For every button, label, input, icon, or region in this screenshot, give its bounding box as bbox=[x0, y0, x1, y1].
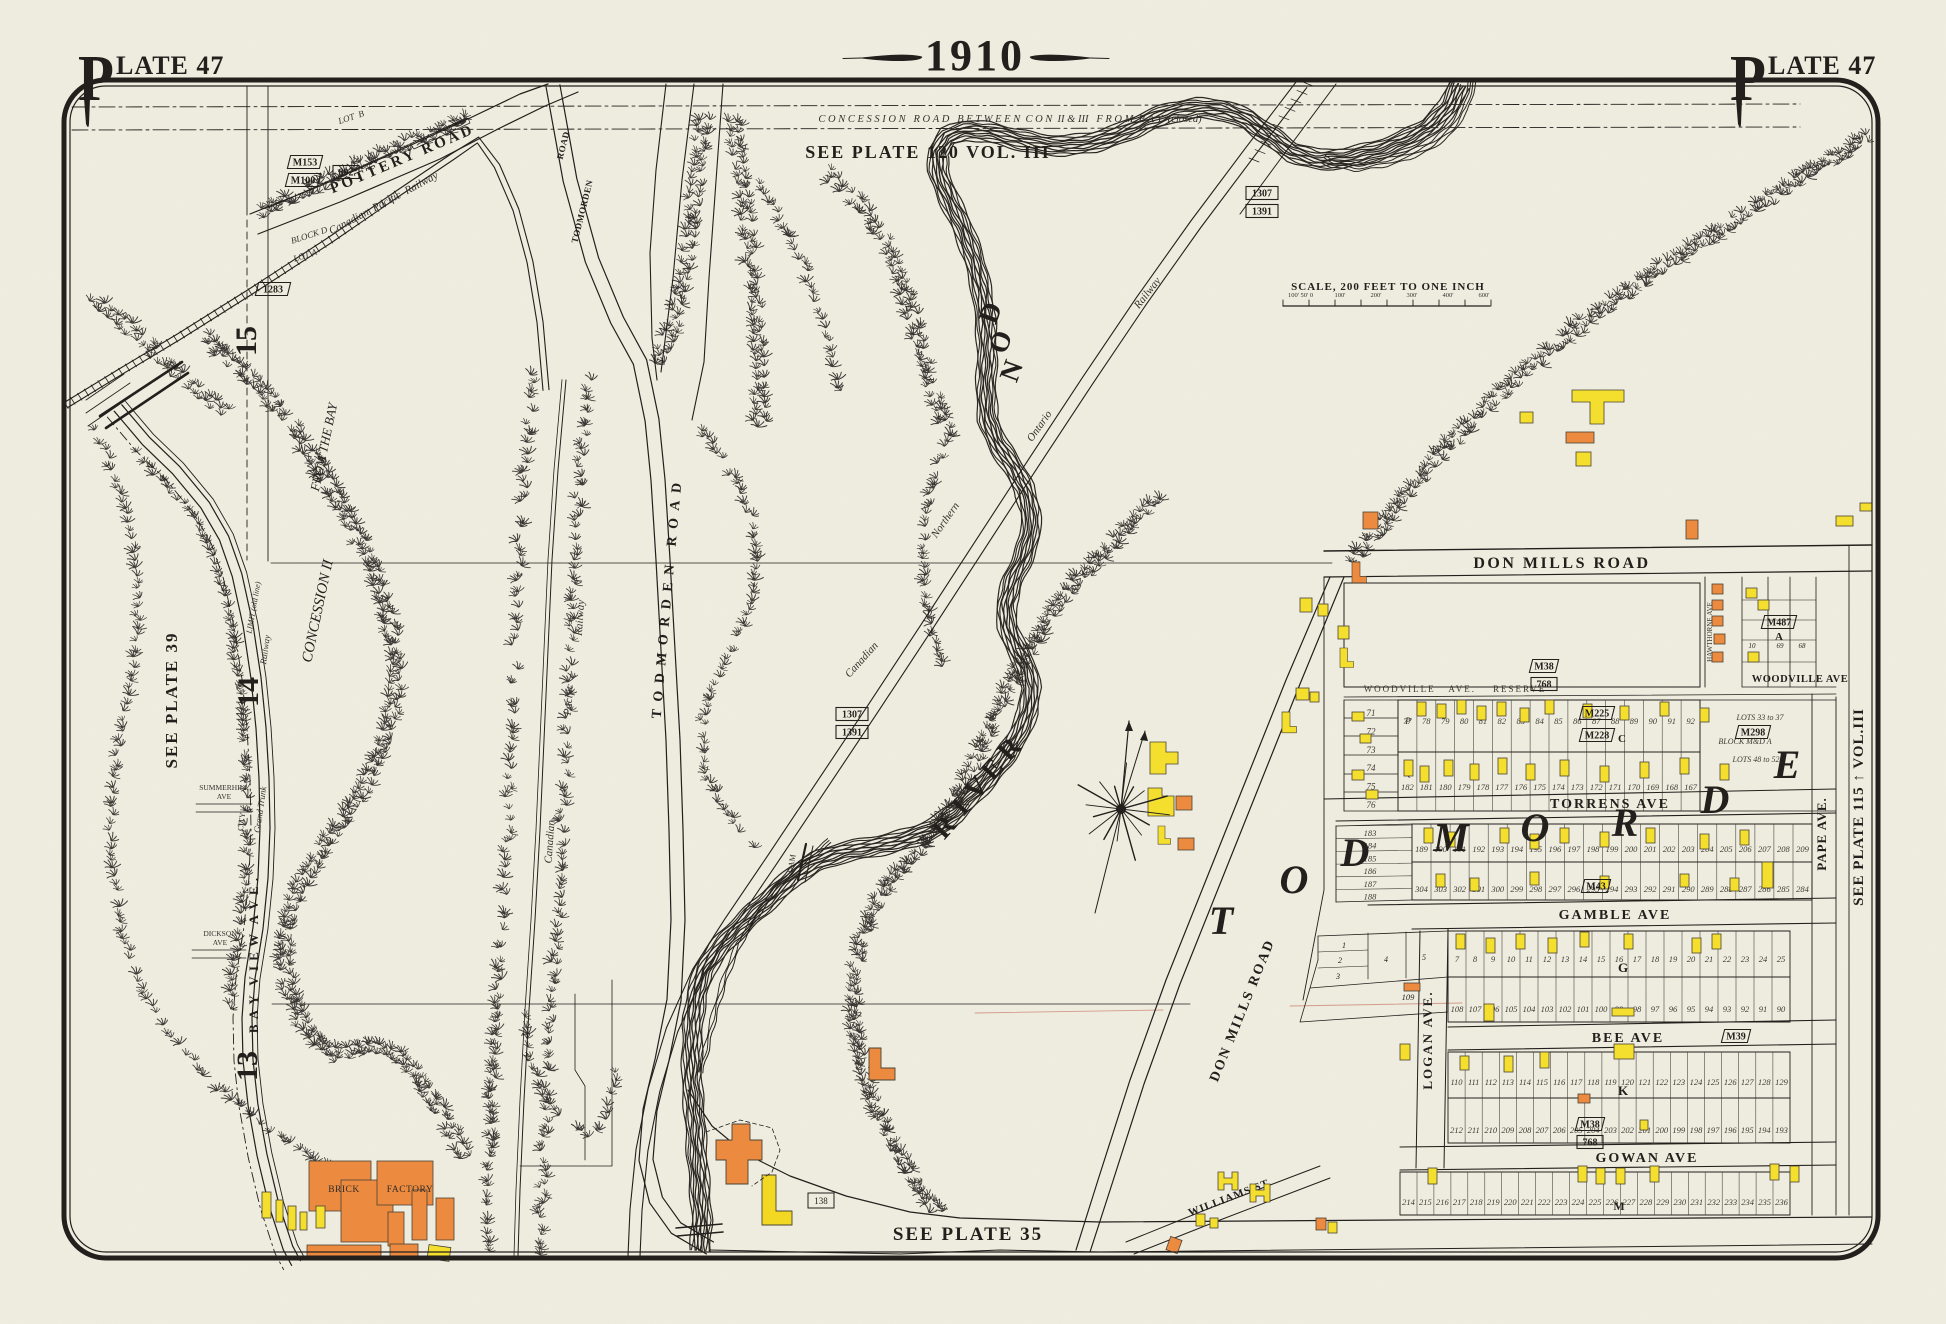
svg-text:AVE: AVE bbox=[213, 938, 228, 947]
svg-text:200: 200 bbox=[1625, 844, 1639, 854]
svg-text:5: 5 bbox=[1422, 953, 1426, 962]
svg-text:1391: 1391 bbox=[1252, 207, 1272, 218]
svg-text:21: 21 bbox=[1705, 954, 1714, 964]
svg-text:LATE 47: LATE 47 bbox=[116, 51, 224, 80]
svg-text:285: 285 bbox=[1777, 884, 1790, 894]
svg-text:123: 123 bbox=[1672, 1077, 1685, 1087]
svg-text:171: 171 bbox=[1609, 782, 1622, 792]
svg-text:M: M bbox=[1613, 1199, 1624, 1213]
svg-text:WOODVILLE AVE. RESERVE: WOODVILLE AVE. RESERVE bbox=[1364, 684, 1547, 694]
svg-text:92: 92 bbox=[1741, 1004, 1750, 1014]
svg-text:GOWAN AVE: GOWAN AVE bbox=[1596, 1151, 1699, 1166]
svg-text:E: E bbox=[1773, 742, 1801, 787]
svg-text:302: 302 bbox=[1452, 884, 1467, 894]
svg-text:93: 93 bbox=[1723, 1004, 1732, 1014]
svg-text:23: 23 bbox=[1741, 954, 1750, 964]
svg-text:124: 124 bbox=[1690, 1077, 1704, 1087]
svg-text:11: 11 bbox=[1525, 954, 1533, 964]
svg-text:78: 78 bbox=[1422, 716, 1431, 726]
svg-text:10: 10 bbox=[1507, 954, 1516, 964]
svg-text:85: 85 bbox=[1554, 716, 1563, 726]
svg-text:600': 600' bbox=[1479, 292, 1490, 299]
svg-text:284: 284 bbox=[1796, 884, 1810, 894]
svg-text:215: 215 bbox=[1419, 1197, 1432, 1207]
svg-text:115: 115 bbox=[1536, 1077, 1548, 1087]
svg-text:297: 297 bbox=[1549, 884, 1563, 894]
svg-text:209: 209 bbox=[1796, 844, 1810, 854]
svg-text:90: 90 bbox=[1649, 716, 1658, 726]
svg-text:176: 176 bbox=[1514, 782, 1528, 792]
svg-text:24: 24 bbox=[1759, 954, 1768, 964]
svg-text:FACTORY: FACTORY bbox=[387, 1185, 433, 1195]
svg-text:R: R bbox=[1611, 800, 1639, 845]
svg-text:233: 233 bbox=[1724, 1197, 1737, 1207]
svg-text:SUMMERHILL: SUMMERHILL bbox=[199, 783, 249, 792]
svg-text:97: 97 bbox=[1651, 1004, 1660, 1014]
svg-text:198: 198 bbox=[1587, 844, 1601, 854]
svg-text:4: 4 bbox=[1384, 955, 1388, 964]
svg-text:768: 768 bbox=[1537, 680, 1552, 691]
svg-text:174: 174 bbox=[1552, 782, 1566, 792]
svg-text:220: 220 bbox=[1504, 1197, 1518, 1207]
svg-text:196: 196 bbox=[1724, 1125, 1738, 1135]
svg-text:76: 76 bbox=[1367, 800, 1377, 810]
svg-text:WOODVILLE AVE: WOODVILLE AVE bbox=[1752, 674, 1848, 685]
svg-text:1307: 1307 bbox=[842, 710, 862, 721]
svg-text:127: 127 bbox=[1741, 1077, 1755, 1087]
svg-text:80: 80 bbox=[1460, 716, 1469, 726]
svg-text:400': 400' bbox=[1443, 292, 1454, 299]
svg-text:118: 118 bbox=[1587, 1077, 1600, 1087]
svg-text:M38: M38 bbox=[1534, 662, 1553, 673]
svg-text:13: 13 bbox=[1561, 954, 1570, 964]
svg-text:Pacific: Pacific bbox=[562, 684, 576, 717]
svg-text:206: 206 bbox=[1553, 1125, 1567, 1135]
svg-text:178: 178 bbox=[1477, 782, 1491, 792]
svg-text:116: 116 bbox=[1553, 1077, 1566, 1087]
svg-text:177: 177 bbox=[1495, 782, 1509, 792]
svg-text:193: 193 bbox=[1491, 844, 1504, 854]
svg-text:17: 17 bbox=[1633, 954, 1642, 964]
svg-text:128: 128 bbox=[1758, 1077, 1772, 1087]
svg-text:LOGAN AVE.: LOGAN AVE. bbox=[1420, 990, 1435, 1089]
svg-text:117: 117 bbox=[1570, 1077, 1583, 1087]
svg-text:203: 203 bbox=[1604, 1125, 1617, 1135]
svg-text:LATE 47: LATE 47 bbox=[1768, 51, 1876, 80]
svg-text:B A Y V I E W A V E .: B A Y V I E W A V E . bbox=[246, 877, 261, 1033]
svg-text:129: 129 bbox=[1775, 1077, 1789, 1087]
svg-text:110: 110 bbox=[1450, 1077, 1463, 1087]
svg-text:170: 170 bbox=[1628, 782, 1642, 792]
svg-text:M38: M38 bbox=[1580, 1120, 1599, 1131]
svg-text:207: 207 bbox=[1758, 844, 1772, 854]
svg-text:304: 304 bbox=[1414, 884, 1429, 894]
svg-text:73: 73 bbox=[1367, 745, 1377, 755]
svg-text:D: D bbox=[1340, 830, 1370, 875]
svg-text:291: 291 bbox=[1663, 884, 1676, 894]
svg-text:223: 223 bbox=[1555, 1197, 1568, 1207]
svg-text:236: 236 bbox=[1775, 1197, 1789, 1207]
svg-text:P: P bbox=[78, 42, 114, 115]
svg-text:175: 175 bbox=[1533, 782, 1546, 792]
svg-text:15: 15 bbox=[230, 326, 263, 356]
svg-text:108: 108 bbox=[1451, 1004, 1465, 1014]
svg-text:299: 299 bbox=[1510, 884, 1524, 894]
svg-text:95: 95 bbox=[1687, 1004, 1696, 1014]
svg-text:205: 205 bbox=[1720, 844, 1733, 854]
svg-text:C: C bbox=[1618, 733, 1626, 745]
svg-text:122: 122 bbox=[1655, 1077, 1669, 1087]
svg-text:HAWTHORNE AVE: HAWTHORNE AVE bbox=[1706, 602, 1714, 662]
svg-text:179: 179 bbox=[1458, 782, 1472, 792]
svg-text:210: 210 bbox=[1484, 1125, 1498, 1135]
svg-text:109: 109 bbox=[1402, 992, 1416, 1002]
svg-text:SEE PLATE 35: SEE PLATE 35 bbox=[893, 1224, 1043, 1245]
svg-text:SCALE, 200 FEET TO ONE INCH: SCALE, 200 FEET TO ONE INCH bbox=[1291, 281, 1485, 293]
svg-text:M43: M43 bbox=[1586, 882, 1605, 893]
svg-text:125: 125 bbox=[1707, 1077, 1720, 1087]
svg-text:M487: M487 bbox=[1767, 618, 1791, 629]
svg-text:K: K bbox=[1618, 1083, 1629, 1098]
svg-text:228: 228 bbox=[1640, 1197, 1654, 1207]
svg-text:114: 114 bbox=[1519, 1077, 1532, 1087]
svg-text:94: 94 bbox=[1705, 1004, 1714, 1014]
svg-text:173: 173 bbox=[1571, 782, 1584, 792]
svg-text:O: O bbox=[1521, 805, 1550, 850]
svg-text:1910: 1910 bbox=[925, 31, 1025, 80]
svg-text:192: 192 bbox=[1472, 844, 1486, 854]
svg-text:222: 222 bbox=[1538, 1197, 1552, 1207]
svg-text:230: 230 bbox=[1673, 1197, 1687, 1207]
svg-text:119: 119 bbox=[1604, 1077, 1617, 1087]
svg-text:229: 229 bbox=[1656, 1197, 1670, 1207]
svg-text:289: 289 bbox=[1701, 884, 1715, 894]
svg-text:25: 25 bbox=[1777, 954, 1786, 964]
svg-text:P: P bbox=[1730, 42, 1766, 115]
svg-text:892: 892 bbox=[339, 168, 354, 179]
svg-text:3: 3 bbox=[1335, 972, 1340, 981]
svg-text:202: 202 bbox=[1621, 1125, 1635, 1135]
svg-text:M: M bbox=[1432, 815, 1470, 860]
svg-text:113: 113 bbox=[1502, 1077, 1514, 1087]
svg-text:92: 92 bbox=[1686, 716, 1695, 726]
svg-text:100': 100' bbox=[1335, 292, 1346, 299]
svg-text:218: 218 bbox=[1470, 1197, 1484, 1207]
svg-text:167: 167 bbox=[1684, 782, 1698, 792]
svg-text:1283: 1283 bbox=[263, 285, 283, 296]
svg-text:M298: M298 bbox=[1741, 728, 1765, 739]
svg-text:298: 298 bbox=[1529, 884, 1543, 894]
svg-text:M228: M228 bbox=[1585, 731, 1609, 742]
svg-text:300': 300' bbox=[1407, 292, 1418, 299]
svg-text:201: 201 bbox=[1644, 844, 1657, 854]
svg-text:P: P bbox=[1404, 716, 1411, 726]
svg-text:O: O bbox=[1280, 857, 1309, 902]
svg-text:1391: 1391 bbox=[842, 728, 862, 739]
svg-text:GAMBLE AVE: GAMBLE AVE bbox=[1559, 908, 1672, 923]
svg-text:112: 112 bbox=[1485, 1077, 1498, 1087]
svg-text:219: 219 bbox=[1487, 1197, 1501, 1207]
svg-text:195: 195 bbox=[1741, 1125, 1754, 1135]
svg-text:235: 235 bbox=[1758, 1197, 1771, 1207]
svg-text:203: 203 bbox=[1682, 844, 1695, 854]
svg-text:69: 69 bbox=[1777, 642, 1785, 650]
svg-text:197: 197 bbox=[1568, 844, 1582, 854]
svg-text:G: G bbox=[1618, 960, 1628, 975]
svg-text:199: 199 bbox=[1672, 1125, 1686, 1135]
svg-text:M225: M225 bbox=[1585, 709, 1609, 720]
svg-text:293: 293 bbox=[1625, 884, 1638, 894]
svg-text:212: 212 bbox=[1450, 1125, 1464, 1135]
svg-text:214: 214 bbox=[1402, 1197, 1416, 1207]
svg-text:SEE PLATE 120 VOL. III: SEE PLATE 120 VOL. III bbox=[805, 142, 1051, 162]
svg-text:221: 221 bbox=[1521, 1197, 1534, 1207]
svg-text:18: 18 bbox=[1651, 954, 1660, 964]
svg-text:12: 12 bbox=[1543, 954, 1552, 964]
svg-text:187: 187 bbox=[1364, 879, 1378, 889]
svg-text:287: 287 bbox=[1739, 884, 1753, 894]
svg-text:M100: M100 bbox=[291, 176, 315, 187]
svg-text:206: 206 bbox=[1739, 844, 1753, 854]
svg-text:224: 224 bbox=[1572, 1197, 1586, 1207]
svg-text:14: 14 bbox=[232, 677, 265, 707]
svg-text:225: 225 bbox=[1589, 1197, 1602, 1207]
svg-text:71: 71 bbox=[1367, 708, 1376, 718]
svg-text:209: 209 bbox=[1501, 1125, 1515, 1135]
svg-text:74: 74 bbox=[1367, 763, 1377, 773]
svg-text:180: 180 bbox=[1439, 782, 1453, 792]
svg-text:2: 2 bbox=[1338, 956, 1342, 965]
svg-text:13: 13 bbox=[231, 1051, 264, 1081]
svg-text:SEE PLATE 115 ↑ VOL.III: SEE PLATE 115 ↑ VOL.III bbox=[1851, 708, 1867, 906]
svg-text:300: 300 bbox=[1490, 884, 1505, 894]
svg-text:208: 208 bbox=[1519, 1125, 1533, 1135]
svg-text:90: 90 bbox=[1777, 1004, 1786, 1014]
svg-text:208: 208 bbox=[1777, 844, 1791, 854]
svg-text:82: 82 bbox=[1498, 716, 1507, 726]
svg-text:91: 91 bbox=[1759, 1004, 1768, 1014]
svg-text:1: 1 bbox=[1342, 941, 1346, 950]
svg-text:89: 89 bbox=[1630, 716, 1639, 726]
svg-text:D: D bbox=[1700, 777, 1730, 822]
svg-text:19: 19 bbox=[1669, 954, 1678, 964]
svg-text:172: 172 bbox=[1590, 782, 1604, 792]
svg-text:102: 102 bbox=[1559, 1004, 1573, 1014]
svg-text:181: 181 bbox=[1420, 782, 1433, 792]
svg-text:22: 22 bbox=[1723, 954, 1732, 964]
svg-text:196: 196 bbox=[1549, 844, 1563, 854]
svg-text:68: 68 bbox=[1799, 642, 1807, 650]
svg-text:200': 200' bbox=[1371, 292, 1382, 299]
svg-text:200: 200 bbox=[1655, 1125, 1669, 1135]
svg-text:126: 126 bbox=[1724, 1077, 1738, 1087]
svg-text:105: 105 bbox=[1505, 1004, 1518, 1014]
svg-text:T: T bbox=[1209, 898, 1235, 943]
svg-text:M39: M39 bbox=[1726, 1032, 1745, 1043]
svg-text:PAPE AVE.: PAPE AVE. bbox=[1814, 797, 1829, 871]
svg-text:182: 182 bbox=[1401, 782, 1415, 792]
svg-text:189: 189 bbox=[1415, 844, 1429, 854]
svg-text:86: 86 bbox=[1573, 716, 1582, 726]
svg-text:234: 234 bbox=[1741, 1197, 1755, 1207]
svg-text:BRICK: BRICK bbox=[328, 1185, 360, 1195]
svg-text:104: 104 bbox=[1523, 1004, 1537, 1014]
svg-text:121: 121 bbox=[1638, 1077, 1651, 1087]
svg-text:202: 202 bbox=[1663, 844, 1677, 854]
svg-text:TORRENS AVE: TORRENS AVE bbox=[1550, 797, 1670, 812]
svg-text:231: 231 bbox=[1690, 1197, 1703, 1207]
svg-text:198: 198 bbox=[1690, 1125, 1704, 1135]
svg-text:15: 15 bbox=[1597, 954, 1606, 964]
svg-text:91: 91 bbox=[1667, 716, 1676, 726]
svg-text:100' 50' 0: 100' 50' 0 bbox=[1288, 292, 1313, 299]
svg-text:103: 103 bbox=[1541, 1004, 1554, 1014]
svg-text:169: 169 bbox=[1646, 782, 1660, 792]
svg-text:188: 188 bbox=[1364, 892, 1378, 902]
svg-text:768: 768 bbox=[1583, 1138, 1598, 1149]
svg-text:217: 217 bbox=[1453, 1197, 1467, 1207]
svg-text:138: 138 bbox=[814, 1196, 828, 1206]
svg-text:197: 197 bbox=[1707, 1125, 1721, 1135]
svg-text:20: 20 bbox=[1687, 954, 1696, 964]
svg-text:96: 96 bbox=[1669, 1004, 1678, 1014]
svg-text:101: 101 bbox=[1577, 1004, 1590, 1014]
svg-text:1307: 1307 bbox=[1252, 189, 1272, 200]
svg-text:296: 296 bbox=[1568, 884, 1582, 894]
svg-text:84: 84 bbox=[1535, 716, 1544, 726]
svg-text:292: 292 bbox=[1644, 884, 1658, 894]
svg-text:M153: M153 bbox=[293, 158, 317, 169]
svg-text:LOTS 33 to 37: LOTS 33 to 37 bbox=[1736, 713, 1785, 722]
svg-text:111: 111 bbox=[1468, 1077, 1480, 1087]
svg-text:SEE PLATE 39: SEE PLATE 39 bbox=[162, 631, 181, 768]
svg-text:194: 194 bbox=[1758, 1125, 1772, 1135]
svg-text:193: 193 bbox=[1775, 1125, 1788, 1135]
svg-text:100: 100 bbox=[1595, 1004, 1609, 1014]
svg-text:LOTS 48 to 52: LOTS 48 to 52 bbox=[1732, 755, 1780, 764]
svg-text:168: 168 bbox=[1665, 782, 1679, 792]
svg-text:10: 10 bbox=[1749, 642, 1757, 650]
svg-text:107: 107 bbox=[1469, 1004, 1483, 1014]
svg-text:DICKSON: DICKSON bbox=[203, 929, 237, 938]
svg-text:211: 211 bbox=[1468, 1125, 1480, 1135]
svg-text:207: 207 bbox=[1536, 1125, 1550, 1135]
svg-text:216: 216 bbox=[1436, 1197, 1450, 1207]
svg-text:232: 232 bbox=[1707, 1197, 1721, 1207]
svg-text:14: 14 bbox=[1579, 954, 1588, 964]
svg-text:AVE: AVE bbox=[217, 792, 232, 801]
svg-text:DON MILLS ROAD: DON MILLS ROAD bbox=[1473, 555, 1650, 572]
